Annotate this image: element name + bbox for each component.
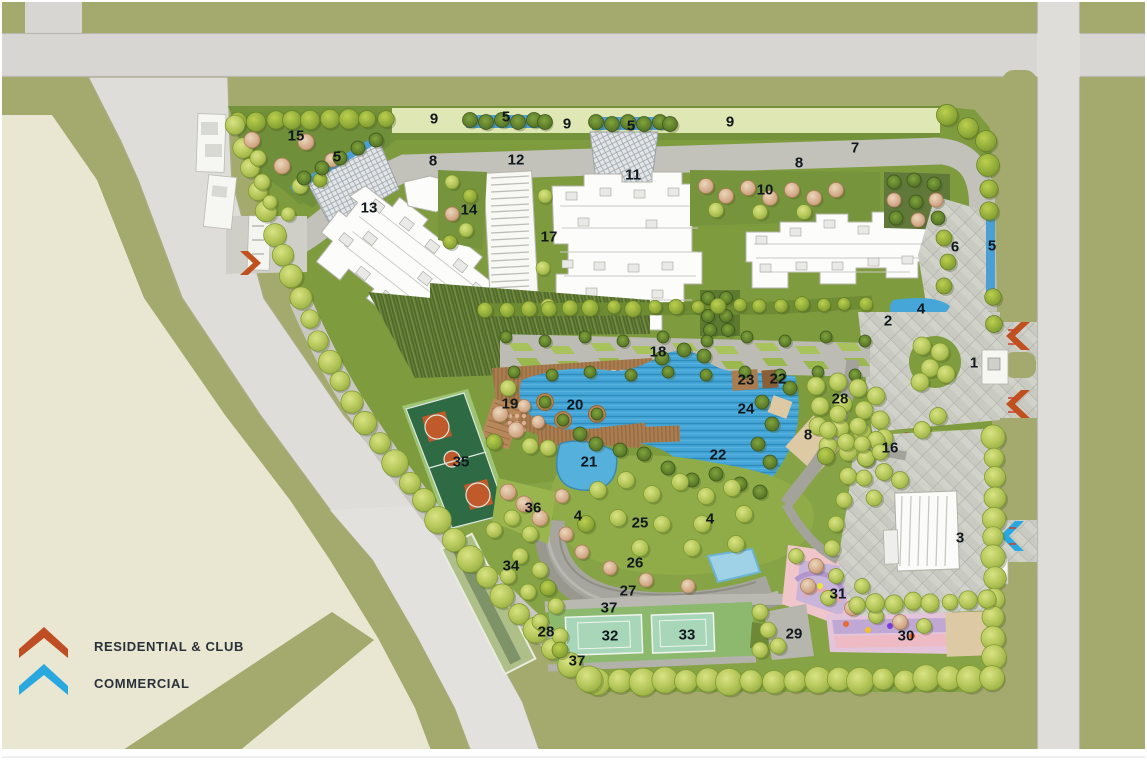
svg-text:9: 9: [726, 114, 734, 131]
svg-text:20: 20: [567, 397, 584, 414]
svg-text:29: 29: [786, 626, 803, 643]
svg-text:4: 4: [574, 508, 583, 525]
svg-text:24: 24: [738, 401, 755, 418]
svg-text:8: 8: [429, 153, 437, 170]
svg-text:37: 37: [569, 653, 586, 670]
svg-text:21: 21: [581, 454, 598, 471]
svg-text:4: 4: [706, 511, 715, 528]
svg-text:22: 22: [770, 371, 787, 388]
svg-text:11: 11: [625, 167, 641, 184]
svg-text:32: 32: [602, 628, 619, 645]
svg-text:RESIDENTIAL & CLUB: RESIDENTIAL & CLUB: [94, 639, 244, 654]
svg-text:2: 2: [884, 313, 892, 330]
svg-text:27: 27: [620, 583, 637, 600]
svg-text:12: 12: [508, 152, 525, 169]
svg-text:35: 35: [453, 454, 470, 471]
svg-text:28: 28: [832, 391, 849, 408]
svg-text:16: 16: [882, 440, 899, 457]
svg-text:36: 36: [525, 500, 542, 517]
svg-text:1: 1: [970, 355, 978, 372]
svg-text:37: 37: [601, 600, 618, 617]
svg-text:30: 30: [898, 628, 915, 645]
svg-text:28: 28: [538, 624, 555, 641]
svg-text:8: 8: [795, 155, 803, 172]
svg-text:25: 25: [632, 515, 649, 532]
svg-text:14: 14: [461, 202, 478, 219]
svg-text:26: 26: [627, 555, 644, 572]
svg-text:23: 23: [738, 372, 755, 389]
svg-text:33: 33: [679, 627, 696, 644]
svg-text:10: 10: [757, 182, 774, 199]
svg-text:5: 5: [627, 118, 635, 135]
svg-text:34: 34: [503, 558, 520, 575]
svg-text:8: 8: [804, 427, 812, 444]
svg-text:15: 15: [288, 128, 305, 145]
svg-text:13: 13: [361, 200, 378, 217]
svg-text:3: 3: [956, 530, 964, 547]
svg-text:9: 9: [430, 111, 438, 128]
svg-text:4: 4: [917, 301, 926, 318]
svg-text:5: 5: [502, 109, 510, 126]
svg-text:6: 6: [951, 239, 959, 256]
svg-text:17: 17: [541, 229, 558, 246]
svg-text:22: 22: [710, 447, 727, 464]
svg-text:5: 5: [333, 149, 341, 166]
svg-text:18: 18: [650, 344, 667, 361]
svg-text:COMMERCIAL: COMMERCIAL: [94, 676, 190, 691]
svg-text:9: 9: [563, 116, 571, 133]
svg-text:7: 7: [851, 140, 859, 157]
svg-text:31: 31: [830, 586, 847, 603]
svg-text:19: 19: [502, 396, 519, 413]
svg-text:5: 5: [988, 238, 996, 255]
